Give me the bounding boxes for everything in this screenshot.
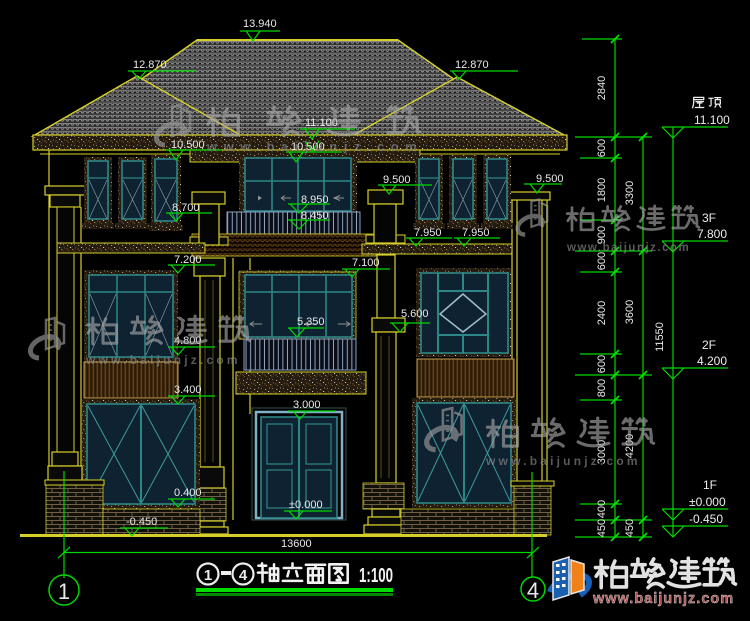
svg-text:1: 1	[204, 567, 212, 584]
svg-text:9.500: 9.500	[383, 174, 411, 186]
svg-text:7.950: 7.950	[462, 227, 490, 239]
svg-text:-0.450: -0.450	[126, 516, 157, 528]
svg-text:12.870: 12.870	[455, 59, 489, 71]
svg-text:7.800: 7.800	[697, 227, 727, 241]
svg-text:4: 4	[239, 567, 248, 584]
svg-text:4: 4	[527, 578, 539, 603]
svg-text:www.baijunjz.com: www.baijunjz.com	[592, 591, 734, 607]
svg-text:1F: 1F	[703, 478, 717, 492]
svg-text:11.100: 11.100	[694, 113, 730, 127]
svg-text:9.500: 9.500	[536, 173, 564, 185]
svg-text:3.400: 3.400	[174, 384, 202, 396]
svg-text:3600: 3600	[624, 300, 636, 324]
svg-text:7.950: 7.950	[414, 227, 442, 239]
svg-text:600: 600	[596, 139, 608, 157]
svg-text:5.350: 5.350	[297, 316, 325, 328]
svg-text:8.700: 8.700	[172, 202, 200, 214]
svg-text:www.baijunjz.com: www.baijunjz.com	[206, 139, 423, 154]
svg-text:www.baijunjz.com: www.baijunjz.com	[85, 353, 241, 367]
svg-text:2F: 2F	[702, 338, 716, 352]
svg-text:1800: 1800	[596, 178, 608, 202]
svg-text:450: 450	[624, 519, 636, 537]
svg-text:±0.000: ±0.000	[289, 499, 323, 511]
svg-text:800: 800	[596, 379, 608, 397]
svg-text:-0.450: -0.450	[689, 512, 723, 526]
svg-text:2400: 2400	[596, 301, 608, 325]
svg-text:12.870: 12.870	[133, 59, 167, 71]
svg-text:www.baijunjz.com: www.baijunjz.com	[566, 242, 690, 254]
svg-text:600: 600	[596, 355, 608, 373]
svg-text:±0.000: ±0.000	[689, 495, 726, 509]
svg-text:0.400: 0.400	[174, 487, 202, 499]
svg-text:8.950: 8.950	[301, 194, 329, 206]
svg-text:600: 600	[596, 252, 608, 270]
svg-text:7.100: 7.100	[352, 257, 380, 269]
svg-text:3F: 3F	[702, 211, 716, 225]
svg-text:5.600: 5.600	[401, 308, 429, 320]
svg-text:10.500: 10.500	[171, 139, 205, 151]
svg-text:7.200: 7.200	[174, 254, 202, 266]
svg-text:4.200: 4.200	[697, 354, 727, 368]
svg-text:13600: 13600	[281, 538, 312, 550]
svg-text:11550: 11550	[654, 322, 666, 352]
svg-text:1:100: 1:100	[359, 565, 393, 587]
svg-text:2840: 2840	[596, 76, 608, 100]
svg-text:8.450: 8.450	[301, 210, 329, 222]
svg-text:www.baijunjz.com: www.baijunjz.com	[485, 454, 641, 468]
svg-text:13.940: 13.940	[243, 18, 277, 30]
svg-text:400: 400	[596, 500, 608, 518]
svg-text:3.000: 3.000	[293, 399, 321, 411]
svg-text:450: 450	[596, 519, 608, 537]
svg-text:3300: 3300	[624, 181, 636, 205]
svg-text:1: 1	[58, 579, 70, 604]
